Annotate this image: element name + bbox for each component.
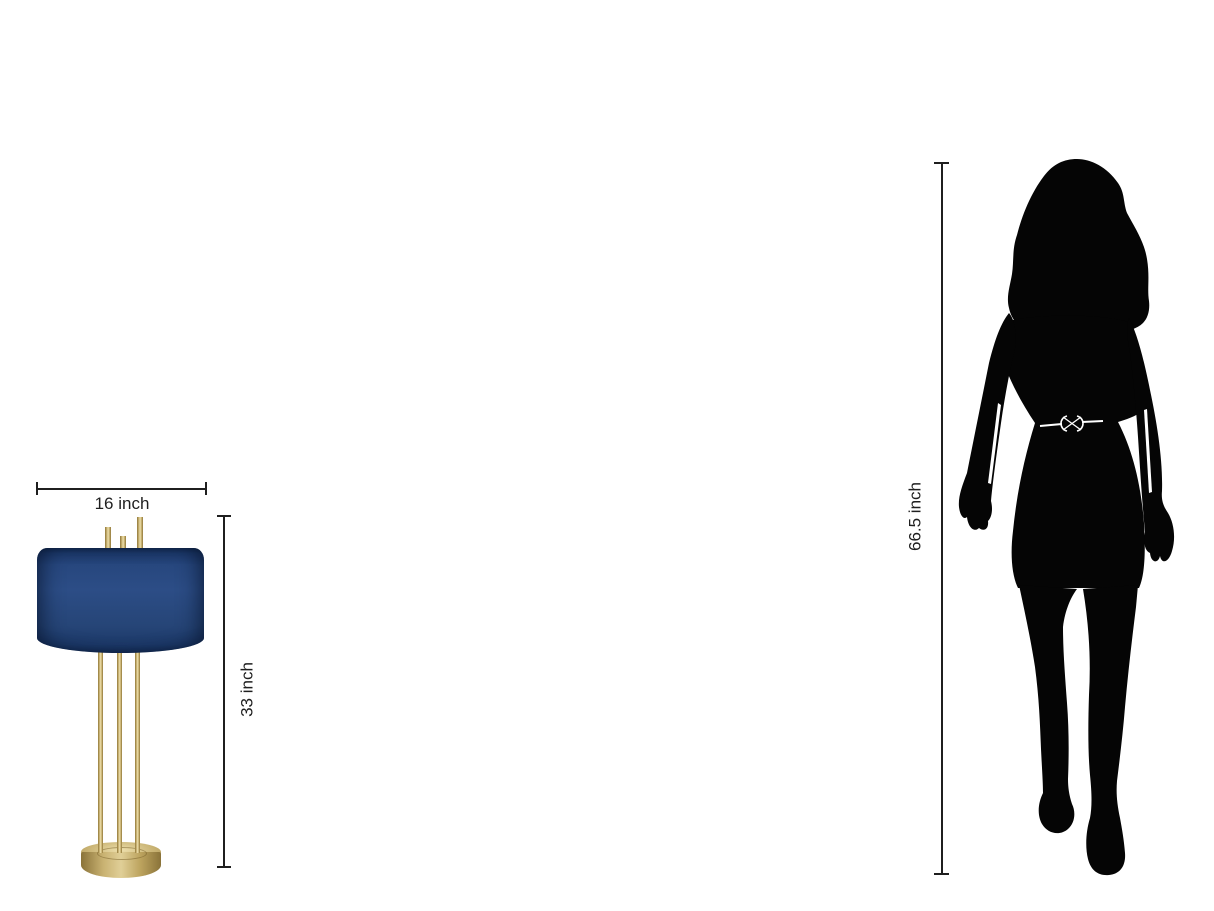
lamp-finial-rod-right bbox=[137, 517, 143, 551]
silhouette-hair-head bbox=[1008, 159, 1149, 338]
lamp-height-tick-bottom bbox=[217, 866, 231, 868]
product-size-chart: 16 inch 33 inch 66.5 inch bbox=[0, 0, 1214, 911]
silhouette-right-leg bbox=[1083, 585, 1138, 875]
lamp-shade bbox=[37, 548, 204, 653]
lamp-height-tick-top bbox=[217, 515, 231, 517]
lamp-stem-rod-middle bbox=[117, 649, 122, 853]
lamp-width-dimension-line bbox=[37, 488, 207, 490]
silhouette-left-arm bbox=[959, 313, 1016, 530]
belt-line-right bbox=[1082, 421, 1103, 422]
person-height-dimension-line bbox=[941, 163, 943, 875]
lamp-height-label: 33 inch bbox=[237, 650, 258, 730]
person-height-tick-bottom bbox=[934, 873, 949, 875]
person-height-tick-top bbox=[934, 162, 949, 164]
lamp-stem-rod-right bbox=[135, 649, 140, 853]
lamp-width-label: 16 inch bbox=[37, 493, 207, 514]
lamp-height-dimension-line bbox=[223, 516, 225, 868]
person-height-label: 66.5 inch bbox=[905, 467, 926, 567]
silhouette-torso-dress bbox=[1000, 316, 1150, 588]
silhouette-left-leg bbox=[1019, 585, 1077, 833]
woman-silhouette bbox=[955, 155, 1185, 883]
lamp-stem-rod-left bbox=[98, 649, 103, 853]
